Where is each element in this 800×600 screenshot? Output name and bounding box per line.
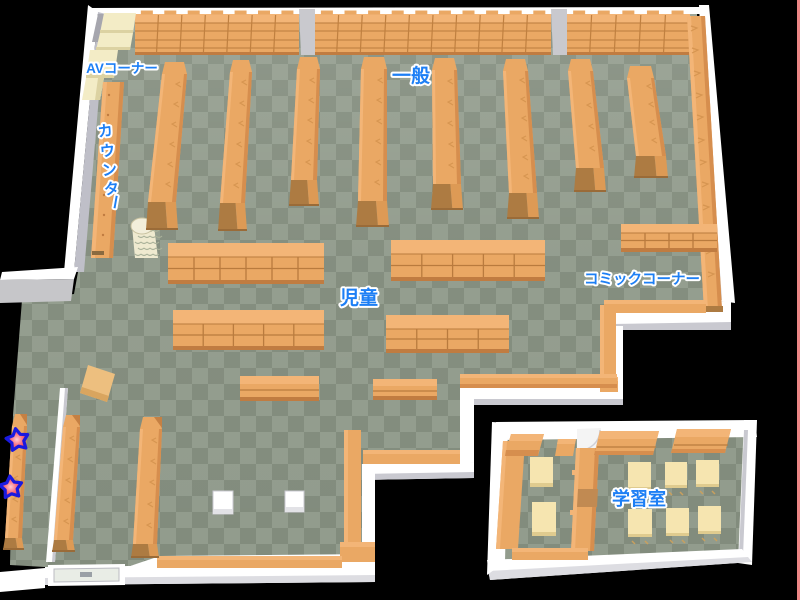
svg-text:カ: カ xyxy=(97,122,114,141)
svg-text:児童: 児童 xyxy=(339,286,378,309)
svg-text:ー: ー xyxy=(105,193,124,211)
svg-text:ン: ン xyxy=(101,161,118,179)
svg-text:コミックコーナー: コミックコーナー xyxy=(584,271,700,288)
svg-text:AVコーナー: AVコーナー xyxy=(86,61,158,76)
svg-text:一般: 一般 xyxy=(392,64,430,87)
svg-text:ウ: ウ xyxy=(99,142,116,160)
svg-text:学習室: 学習室 xyxy=(612,488,666,509)
